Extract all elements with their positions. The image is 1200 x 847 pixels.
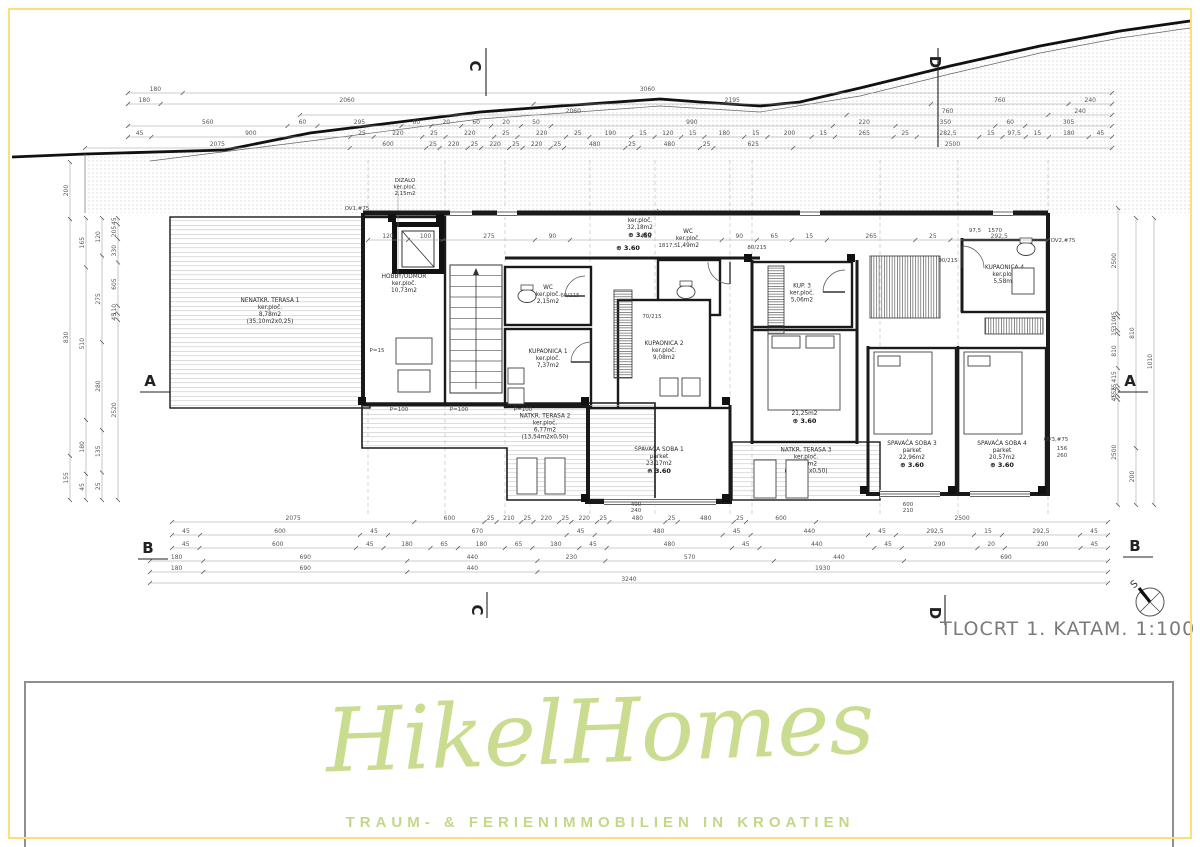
svg-text:9,08m2: 9,08m2 bbox=[653, 355, 676, 361]
compass-icon: S bbox=[1126, 578, 1170, 622]
svg-text:455: 455 bbox=[640, 233, 652, 240]
svg-text:292,5: 292,5 bbox=[1032, 528, 1049, 535]
svg-text:230: 230 bbox=[566, 554, 578, 561]
svg-text:295: 295 bbox=[354, 119, 366, 126]
svg-text:ker.ploč.: ker.ploč. bbox=[676, 235, 700, 242]
svg-text:670: 670 bbox=[472, 528, 484, 535]
svg-text:SPAVAĆA SOBA 3: SPAVAĆA SOBA 3 bbox=[887, 440, 937, 447]
svg-text:P=15: P=15 bbox=[370, 348, 385, 354]
svg-text:2060: 2060 bbox=[566, 108, 581, 115]
svg-text:25: 25 bbox=[574, 130, 582, 137]
svg-text:97,5: 97,5 bbox=[969, 228, 982, 234]
svg-text:180: 180 bbox=[719, 130, 731, 137]
svg-text:ker.ploč.: ker.ploč. bbox=[392, 280, 416, 287]
svg-text:45: 45 bbox=[366, 541, 374, 548]
svg-text:600: 600 bbox=[775, 515, 787, 522]
svg-text:25: 25 bbox=[430, 130, 438, 137]
svg-text:690: 690 bbox=[300, 554, 312, 561]
svg-text:10,73m2: 10,73m2 bbox=[391, 288, 417, 294]
svg-text:1010: 1010 bbox=[1147, 354, 1154, 369]
svg-text:OV2,#75: OV2,#75 bbox=[1051, 238, 1076, 244]
svg-text:P=100: P=100 bbox=[450, 407, 469, 413]
svg-text:NENATKR. TERASA 1: NENATKR. TERASA 1 bbox=[241, 298, 300, 304]
svg-text:20: 20 bbox=[987, 541, 995, 548]
svg-text:305: 305 bbox=[1063, 119, 1075, 126]
svg-text:100: 100 bbox=[420, 233, 432, 240]
svg-text:60/215: 60/215 bbox=[560, 293, 580, 299]
svg-text:70/215: 70/215 bbox=[642, 314, 662, 320]
svg-text:220: 220 bbox=[531, 141, 543, 148]
svg-text:(13,54m2x0,50): (13,54m2x0,50) bbox=[522, 435, 569, 441]
svg-text:200: 200 bbox=[63, 185, 70, 197]
svg-text:240: 240 bbox=[1074, 108, 1086, 115]
svg-text:45: 45 bbox=[370, 528, 378, 535]
svg-text:440: 440 bbox=[811, 541, 823, 548]
svg-text:200: 200 bbox=[784, 130, 796, 137]
svg-text:625: 625 bbox=[747, 141, 759, 148]
svg-text:2500: 2500 bbox=[945, 141, 960, 148]
floorplan-sheet: NENATKR. TERASA 1ker.ploč.8,78m2(35,10m2… bbox=[0, 0, 1200, 847]
svg-text:KUPAONICA 2: KUPAONICA 2 bbox=[644, 341, 683, 347]
svg-text:⊕ 3.60: ⊕ 3.60 bbox=[793, 417, 817, 425]
svg-text:15: 15 bbox=[639, 130, 647, 137]
svg-text:P=100: P=100 bbox=[390, 407, 409, 413]
svg-text:ker.ploč.: ker.ploč. bbox=[790, 290, 814, 297]
svg-text:B: B bbox=[1129, 537, 1140, 555]
svg-text:45: 45 bbox=[182, 541, 190, 548]
svg-text:292,5: 292,5 bbox=[991, 233, 1008, 240]
svg-text:220: 220 bbox=[536, 130, 548, 137]
svg-text:180: 180 bbox=[550, 541, 562, 548]
svg-text:15: 15 bbox=[752, 130, 760, 137]
svg-text:A: A bbox=[144, 372, 156, 390]
svg-text:440: 440 bbox=[804, 528, 816, 535]
svg-text:156: 156 bbox=[1057, 446, 1068, 452]
svg-text:1930: 1930 bbox=[815, 565, 830, 572]
svg-text:120: 120 bbox=[382, 233, 394, 240]
svg-text:180: 180 bbox=[139, 97, 151, 104]
svg-text:330: 330 bbox=[111, 245, 118, 257]
svg-text:45: 45 bbox=[182, 528, 190, 535]
svg-text:480: 480 bbox=[700, 515, 712, 522]
svg-text:265: 265 bbox=[865, 233, 877, 240]
svg-text:760: 760 bbox=[994, 97, 1006, 104]
svg-text:2500: 2500 bbox=[1111, 444, 1118, 459]
svg-text:290: 290 bbox=[934, 541, 946, 548]
svg-text:180: 180 bbox=[171, 565, 183, 572]
svg-text:830: 830 bbox=[63, 332, 70, 344]
svg-text:45: 45 bbox=[1090, 541, 1098, 548]
svg-text:25: 25 bbox=[901, 130, 909, 137]
svg-text:292,5: 292,5 bbox=[926, 528, 943, 535]
svg-text:600: 600 bbox=[274, 528, 286, 535]
svg-text:120: 120 bbox=[95, 231, 102, 243]
svg-text:415: 415 bbox=[1111, 371, 1118, 383]
svg-text:2,15m2: 2,15m2 bbox=[537, 299, 560, 305]
svg-text:3060: 3060 bbox=[640, 86, 655, 93]
svg-text:15: 15 bbox=[689, 130, 697, 137]
svg-text:180: 180 bbox=[1063, 130, 1075, 137]
svg-text:HOBBY/ODMOR: HOBBY/ODMOR bbox=[382, 274, 427, 280]
svg-text:240: 240 bbox=[1085, 97, 1097, 104]
svg-text:D: D bbox=[926, 56, 944, 68]
svg-text:25: 25 bbox=[599, 515, 607, 522]
svg-text:220: 220 bbox=[464, 130, 476, 137]
svg-text:45: 45 bbox=[79, 483, 86, 491]
svg-text:180: 180 bbox=[401, 541, 413, 548]
svg-text:⊕ 3.60: ⊕ 3.60 bbox=[616, 244, 640, 252]
svg-text:15: 15 bbox=[806, 233, 814, 240]
svg-text:20: 20 bbox=[502, 119, 510, 126]
svg-text:190: 190 bbox=[605, 130, 617, 137]
svg-text:165: 165 bbox=[79, 237, 86, 249]
svg-text:OV3,#75: OV3,#75 bbox=[1044, 437, 1069, 443]
svg-text:480: 480 bbox=[589, 141, 601, 148]
svg-text:120: 120 bbox=[662, 130, 674, 137]
svg-text:155: 155 bbox=[63, 472, 70, 484]
svg-text:45: 45 bbox=[884, 541, 892, 548]
svg-text:ker.ploč.: ker.ploč. bbox=[536, 355, 560, 362]
svg-text:parket: parket bbox=[993, 448, 1012, 454]
svg-text:180: 180 bbox=[79, 441, 86, 453]
svg-text:290: 290 bbox=[1037, 541, 1049, 548]
company-tagline: TRAUM- & FERIENIMMOBILIEN IN KROATIEN bbox=[0, 814, 1200, 831]
svg-text:440: 440 bbox=[833, 554, 845, 561]
svg-text:50: 50 bbox=[532, 119, 540, 126]
svg-text:parket: parket bbox=[903, 448, 922, 454]
svg-text:B: B bbox=[142, 539, 153, 557]
svg-text:45: 45 bbox=[111, 313, 118, 321]
svg-text:C: C bbox=[468, 604, 486, 615]
svg-text:45: 45 bbox=[111, 217, 118, 225]
svg-text:605: 605 bbox=[111, 278, 118, 290]
svg-text:180: 180 bbox=[171, 554, 183, 561]
svg-text:2075: 2075 bbox=[210, 141, 225, 148]
svg-text:220: 220 bbox=[392, 130, 404, 137]
svg-text:45: 45 bbox=[136, 130, 144, 137]
svg-text:8,78m2: 8,78m2 bbox=[259, 312, 282, 318]
svg-text:25: 25 bbox=[668, 515, 676, 522]
svg-text:220: 220 bbox=[579, 515, 591, 522]
svg-text:810: 810 bbox=[1129, 327, 1136, 339]
svg-text:990: 990 bbox=[686, 119, 698, 126]
svg-text:15: 15 bbox=[819, 130, 827, 137]
svg-text:690: 690 bbox=[1000, 554, 1012, 561]
svg-text:C: C bbox=[466, 60, 484, 71]
svg-text:1817,5: 1817,5 bbox=[658, 243, 678, 249]
svg-text:25: 25 bbox=[429, 141, 437, 148]
svg-text:45: 45 bbox=[742, 541, 750, 548]
svg-text:600: 600 bbox=[382, 141, 394, 148]
drawing-title: TLOCRT 1. KATA bbox=[940, 618, 1104, 640]
svg-text:⊕ 3.60: ⊕ 3.60 bbox=[900, 461, 924, 469]
svg-text:65: 65 bbox=[515, 541, 523, 548]
svg-text:480: 480 bbox=[632, 515, 644, 522]
svg-text:WC: WC bbox=[543, 285, 553, 291]
svg-text:210: 210 bbox=[503, 515, 515, 522]
svg-text:7,37m2: 7,37m2 bbox=[537, 363, 560, 369]
svg-text:220: 220 bbox=[541, 515, 553, 522]
svg-text:220: 220 bbox=[858, 119, 870, 126]
svg-text:ker.ploč.: ker.ploč. bbox=[652, 347, 676, 354]
svg-text:440: 440 bbox=[467, 565, 479, 572]
svg-text:3240: 3240 bbox=[621, 576, 636, 583]
svg-text:15: 15 bbox=[1034, 130, 1042, 137]
svg-text:2500: 2500 bbox=[1111, 253, 1118, 268]
svg-text:60: 60 bbox=[472, 119, 480, 126]
svg-text:90: 90 bbox=[735, 233, 743, 240]
svg-text:25: 25 bbox=[736, 515, 744, 522]
svg-text:DIZALO: DIZALO bbox=[395, 178, 416, 184]
svg-text:180: 180 bbox=[476, 541, 488, 548]
svg-text:45: 45 bbox=[733, 528, 741, 535]
svg-text:ker.ploč.: ker.ploč. bbox=[794, 454, 818, 461]
svg-text:760: 760 bbox=[942, 108, 954, 115]
svg-text:2060: 2060 bbox=[339, 97, 354, 104]
svg-text:180: 180 bbox=[150, 86, 162, 93]
svg-text:60: 60 bbox=[413, 119, 421, 126]
svg-text:45: 45 bbox=[577, 528, 585, 535]
svg-text:ker.ploč.: ker.ploč. bbox=[628, 217, 652, 224]
svg-text:15: 15 bbox=[984, 528, 992, 535]
svg-text:310: 310 bbox=[1111, 318, 1118, 330]
svg-text:25: 25 bbox=[929, 233, 937, 240]
svg-text:480: 480 bbox=[653, 528, 665, 535]
svg-text:NATKR. TERASA 2: NATKR. TERASA 2 bbox=[520, 414, 571, 420]
svg-text:810: 810 bbox=[1111, 345, 1118, 357]
svg-text:600: 600 bbox=[272, 541, 284, 548]
svg-text:ker.ploč.: ker.ploč. bbox=[393, 184, 416, 191]
svg-text:25: 25 bbox=[487, 515, 495, 522]
svg-text:600: 600 bbox=[444, 515, 456, 522]
svg-text:5,06m2: 5,06m2 bbox=[791, 298, 814, 304]
svg-text:25: 25 bbox=[628, 141, 636, 148]
svg-text:(35,10m2x0,25): (35,10m2x0,25) bbox=[247, 319, 294, 325]
svg-text:480: 480 bbox=[664, 541, 676, 548]
svg-text:45: 45 bbox=[1097, 130, 1105, 137]
svg-text:90: 90 bbox=[549, 233, 557, 240]
svg-text:205: 205 bbox=[111, 226, 118, 238]
svg-text:6,77m2: 6,77m2 bbox=[534, 428, 557, 434]
svg-text:280: 280 bbox=[95, 380, 102, 392]
svg-text:440: 440 bbox=[467, 554, 479, 561]
svg-text:WC: WC bbox=[683, 229, 693, 235]
svg-text:265: 265 bbox=[858, 130, 870, 137]
svg-text:KUPAONICA 1: KUPAONICA 1 bbox=[528, 349, 567, 355]
svg-text:45: 45 bbox=[589, 541, 597, 548]
svg-text:2500: 2500 bbox=[954, 515, 969, 522]
svg-text:NATKR. TERASA 3: NATKR. TERASA 3 bbox=[781, 448, 832, 454]
svg-text:OV1,#75: OV1,#75 bbox=[345, 206, 370, 212]
svg-text:275: 275 bbox=[483, 233, 495, 240]
svg-text:60: 60 bbox=[1006, 119, 1014, 126]
svg-text:260: 260 bbox=[1057, 453, 1068, 459]
svg-text:570: 570 bbox=[684, 554, 696, 561]
svg-text:80/215: 80/215 bbox=[747, 245, 767, 251]
svg-text:350: 350 bbox=[940, 119, 952, 126]
svg-text:1570: 1570 bbox=[988, 228, 1002, 234]
svg-text:510: 510 bbox=[79, 338, 86, 350]
svg-text:25: 25 bbox=[95, 482, 102, 490]
svg-text:25: 25 bbox=[512, 141, 520, 148]
svg-text:480: 480 bbox=[664, 141, 676, 148]
svg-text:25: 25 bbox=[358, 130, 366, 137]
svg-text:25: 25 bbox=[554, 141, 562, 148]
svg-text:282,5: 282,5 bbox=[939, 130, 956, 137]
svg-text:20: 20 bbox=[442, 119, 450, 126]
floorplan-drawing: NENATKR. TERASA 1ker.ploč.8,78m2(35,10m2… bbox=[0, 0, 1200, 680]
svg-text:SPAVAĆA SOBA 4: SPAVAĆA SOBA 4 bbox=[977, 440, 1027, 447]
svg-text:2,15m2: 2,15m2 bbox=[394, 191, 415, 197]
svg-text:60: 60 bbox=[299, 119, 307, 126]
svg-text:A: A bbox=[1124, 372, 1136, 390]
svg-text:P=100: P=100 bbox=[514, 407, 533, 413]
svg-text:2520: 2520 bbox=[111, 402, 118, 417]
svg-text:45: 45 bbox=[1090, 528, 1098, 535]
svg-text:560: 560 bbox=[202, 119, 214, 126]
svg-text:25: 25 bbox=[502, 130, 510, 137]
svg-text:1,49m2: 1,49m2 bbox=[677, 243, 700, 249]
svg-text:25: 25 bbox=[523, 515, 531, 522]
svg-text:KUP. 3: KUP. 3 bbox=[793, 284, 811, 290]
svg-text:25: 25 bbox=[561, 515, 569, 522]
svg-text:210: 210 bbox=[903, 508, 914, 514]
svg-text:90/215: 90/215 bbox=[938, 258, 958, 264]
svg-text:900: 900 bbox=[245, 130, 257, 137]
svg-text:⊕ 3.60: ⊕ 3.60 bbox=[990, 461, 1014, 469]
svg-text:690: 690 bbox=[300, 565, 312, 572]
svg-text:135: 135 bbox=[95, 445, 102, 457]
svg-text:2075: 2075 bbox=[286, 515, 301, 522]
svg-text:65: 65 bbox=[440, 541, 448, 548]
svg-text:15: 15 bbox=[987, 130, 995, 137]
svg-text:25: 25 bbox=[703, 141, 711, 148]
svg-text:200: 200 bbox=[1129, 471, 1136, 483]
svg-text:97,5: 97,5 bbox=[1007, 130, 1021, 137]
svg-text:240: 240 bbox=[631, 508, 642, 514]
svg-text:ker.ploč.: ker.ploč. bbox=[533, 420, 557, 427]
svg-text:2195: 2195 bbox=[725, 97, 740, 104]
svg-text:ker.ploč.: ker.ploč. bbox=[536, 291, 560, 298]
svg-text:45: 45 bbox=[878, 528, 886, 535]
svg-text:275: 275 bbox=[95, 293, 102, 305]
svg-text:ker.ploč.: ker.ploč. bbox=[258, 304, 282, 311]
svg-text:220: 220 bbox=[448, 141, 460, 148]
svg-text:65: 65 bbox=[771, 233, 779, 240]
svg-text:25: 25 bbox=[471, 141, 479, 148]
svg-text:220: 220 bbox=[489, 141, 501, 148]
